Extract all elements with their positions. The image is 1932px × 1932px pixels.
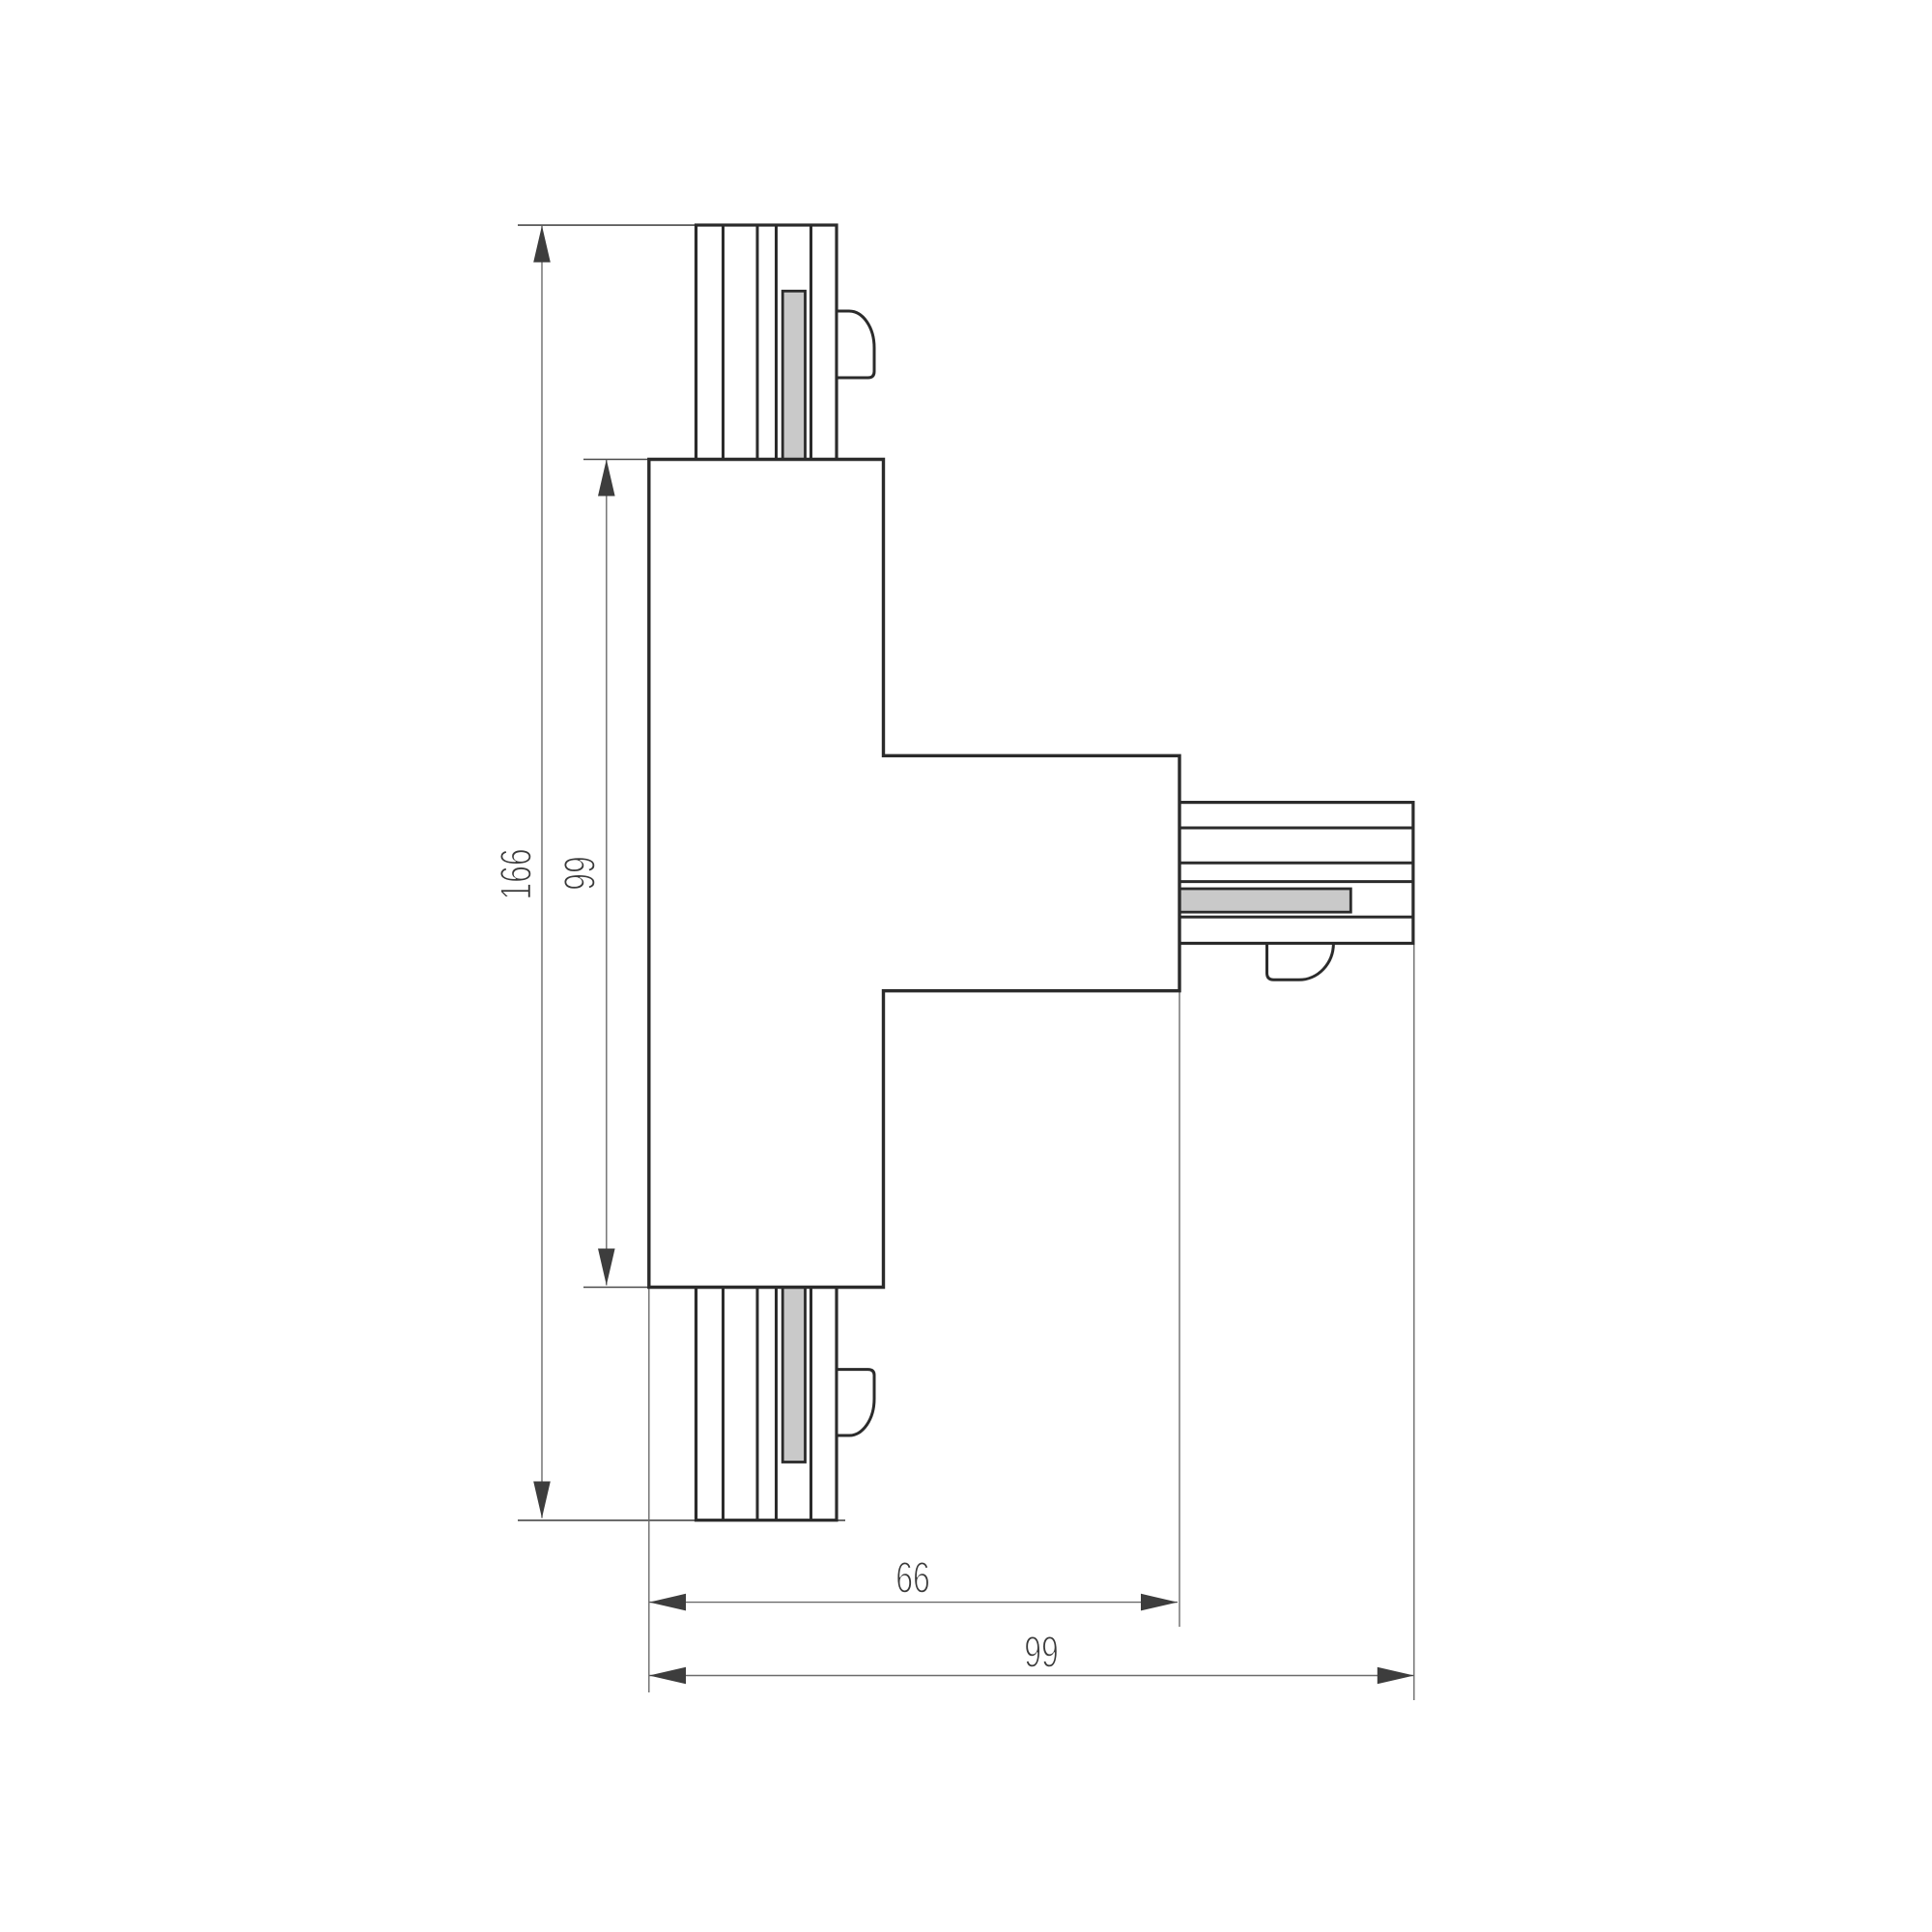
svg-text:99: 99 bbox=[556, 856, 605, 891]
svg-text:166: 166 bbox=[493, 848, 541, 899]
svg-text:66: 66 bbox=[895, 1554, 930, 1603]
svg-text:99: 99 bbox=[1024, 1629, 1059, 1677]
